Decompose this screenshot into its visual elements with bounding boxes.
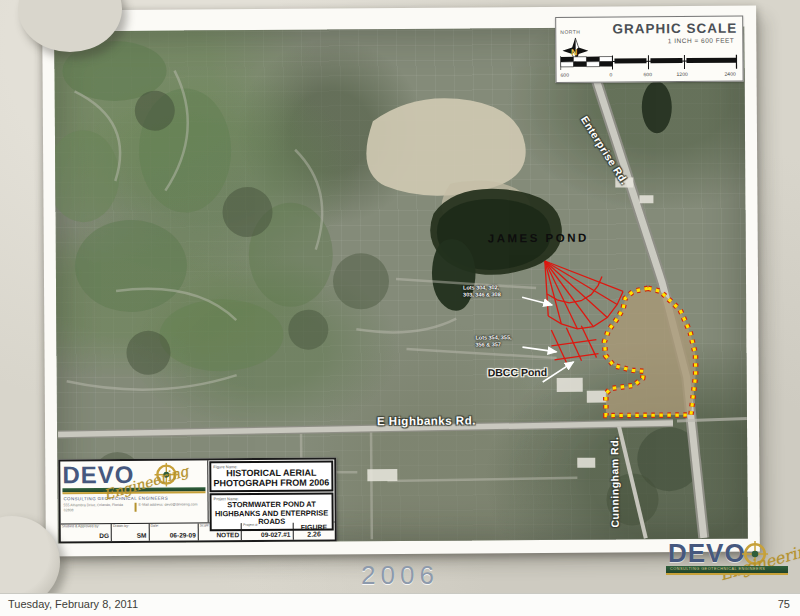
north-compass: NORTH N (560, 20, 596, 52)
title-block-fields: Studied & Approved by: DG Drawn by: SM D… (61, 522, 335, 541)
terrain-layer (54, 37, 701, 530)
title-block: DEVO Engineering CONSULTING GEOTECHNICAL… (58, 457, 337, 543)
footer-page-number: 75 (778, 598, 790, 610)
lots-lower-label: Lots 354, 355, 356 & 357 (475, 334, 511, 348)
figure-name-box: Figure Name: HISTORICAL AERIAL PHOTOGRAP… (209, 460, 333, 492)
field-project-number: Project #: 09-027.#1 (242, 523, 293, 540)
cunningham-road-label: Cunningham Rd. (608, 436, 621, 527)
lots-lower-line2: 356 & 357 (475, 341, 511, 348)
devo-footer-logo: DEVO Engineering CONSULTING GEOTECHNICAL… (666, 540, 788, 586)
photo-frame: JAMES POND Lots 304, 302, 303, 346 & 308… (42, 6, 760, 557)
lots-lower-line1: Lots 354, 355, (475, 334, 511, 341)
dbcc-pond-label: DBCC Pond (488, 366, 548, 378)
scale-tick: 1200 (677, 71, 688, 77)
title-block-main: DEVO Engineering CONSULTING GEOTECHNICAL… (60, 459, 334, 524)
scale-tick-labels: 600 0 600 1200 2400 (561, 71, 739, 80)
devo-address-right: E-Mail address: devo@devoeng.com (139, 502, 208, 512)
figure-name: HISTORICAL AERIAL PHOTOGRAPH FROM 2006 (211, 468, 331, 490)
field-value: 06-29-09 (149, 531, 195, 538)
scale-bar (560, 53, 738, 72)
lots-upper-line2: 303, 346 & 308 (463, 291, 501, 298)
lots-upper-label: Lots 304, 302, 303, 346 & 308 (463, 284, 501, 298)
red-lot-annotation (545, 260, 624, 363)
enterprise-road-label: Enterprise Rd. (579, 114, 631, 187)
field-label: Date: (150, 524, 196, 528)
field-value: DG (61, 532, 109, 539)
north-label: NORTH (560, 29, 580, 35)
field-label: Studied & Approved by: (62, 525, 110, 529)
title-block-logo-cell: DEVO Engineering CONSULTING GEOTECHNICAL… (60, 460, 208, 523)
devo-address-block: 555 Alhambra Drive, Orlando, Florida 328… (64, 502, 208, 512)
field-label: Project #: (243, 524, 291, 528)
highbanks-road-label: E Highbanks Rd. (377, 414, 476, 427)
aerial-photo: JAMES POND Lots 304, 302, 303, 346 & 308… (54, 27, 748, 544)
address-divider (135, 503, 137, 512)
scale-tick: 0 (610, 72, 613, 78)
field-value: FIGURE 2.26 (293, 523, 334, 537)
devo-logo-bars: CONSULTING GEOTECHNICAL ENGINEERS (666, 566, 788, 575)
presentation-slide: JAMES POND Lots 304, 302, 303, 346 & 308… (0, 0, 800, 616)
scale-tick: 600 (644, 71, 652, 77)
field-label: Scale: (200, 524, 240, 528)
footer-bar: Tuesday, February 8, 2011 75 (0, 593, 800, 616)
field-scale: Scale: NOTED (199, 523, 242, 540)
graphic-scale-box: NORTH N GRAPHIC SCALE 1 INCH = 600 FEET (555, 16, 743, 83)
field-value: NOTED (199, 531, 239, 538)
devo-tagline: CONSULTING GEOTECHNICAL ENGINEERS (63, 495, 207, 501)
scale-tick: 600 (561, 72, 569, 78)
devo-address-left: 555 Alhambra Drive, Orlando, Florida 328… (64, 503, 133, 513)
scale-tick: 2400 (725, 71, 736, 77)
site-boundary (604, 288, 696, 416)
james-pond-label: JAMES POND (488, 232, 589, 245)
field-figure-number: FIGURE 2.26 (293, 522, 335, 539)
field-value: SM (112, 532, 147, 539)
field-date: Date: 06-29-09 (149, 523, 198, 540)
scale-header: NORTH N GRAPHIC SCALE 1 INCH = 600 FEET (556, 17, 742, 54)
field-label: Drawn by: (113, 525, 148, 529)
title-block-names: Figure Name: HISTORICAL AERIAL PHOTOGRAP… (208, 459, 334, 522)
field-approved-by: Studied & Approved by: DG (61, 524, 112, 541)
field-value: 09-027.#1 (242, 531, 290, 538)
footer-date: Tuesday, February 8, 2011 (8, 598, 138, 610)
graphic-scale-subtitle: 1 INCH = 600 FEET (668, 37, 735, 44)
field-drawn-by: Drawn by: SM (112, 524, 150, 541)
graphic-scale-title: GRAPHIC SCALE (612, 21, 737, 37)
devo-tagline: CONSULTING GEOTECHNICAL ENGINEERS (670, 567, 765, 571)
